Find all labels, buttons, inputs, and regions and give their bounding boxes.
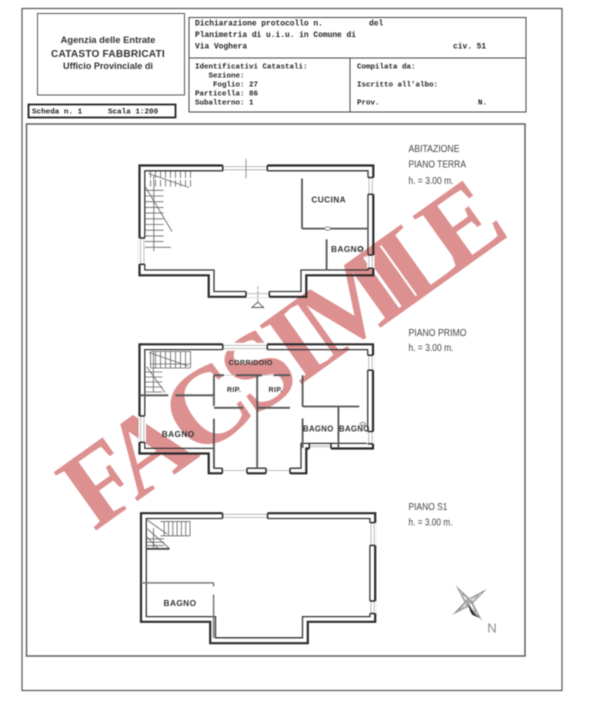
svg-text:PIANO S1: PIANO S1 (409, 502, 448, 513)
svg-text:Planimetria di u.i.u. in Comun: Planimetria di u.i.u. in Comune di (195, 31, 356, 40)
svg-text:Scheda n. 1: Scheda n. 1 (32, 109, 83, 117)
svg-text:Dichiarazione protocollo n.: Dichiarazione protocollo n. (195, 20, 323, 29)
svg-text:RIP.: RIP. (227, 385, 241, 394)
svg-text:BAGNO: BAGNO (331, 244, 364, 254)
svg-text:PIANO TERRA: PIANO TERRA (409, 160, 467, 171)
svg-text:N: N (487, 621, 496, 636)
svg-text:civ. 51: civ. 51 (453, 43, 486, 52)
svg-text:Subalterno: 1: Subalterno: 1 (195, 100, 254, 108)
svg-text:Foglio: 27: Foglio: 27 (195, 82, 258, 90)
svg-text:BAGNO: BAGNO (164, 598, 197, 608)
svg-text:h. = 3.00 m.: h. = 3.00 m. (409, 343, 454, 354)
svg-text:BAGNO: BAGNO (339, 425, 370, 434)
svg-text:ABITAZIONE: ABITAZIONE (409, 144, 460, 155)
svg-text:h. = 3.00 m.: h. = 3.00 m. (409, 176, 454, 187)
svg-text:Prov.: Prov. (357, 100, 380, 108)
svg-text:Ufficio Provinciale di: Ufficio Provinciale di (63, 61, 153, 71)
svg-text:Particella: 86: Particella: 86 (195, 91, 259, 99)
svg-text:PIANO PRIMO: PIANO PRIMO (409, 328, 467, 339)
svg-text:BAGNO: BAGNO (303, 425, 334, 434)
svg-text:CATASTO FABBRICATI: CATASTO FABBRICATI (51, 49, 165, 60)
svg-text:Compilata da:: Compilata da: (357, 64, 416, 72)
svg-text:Identificativi Catastali:: Identificativi Catastali: (195, 64, 308, 72)
svg-text:RIP.: RIP. (268, 385, 282, 394)
svg-text:h. = 3.00 m.: h. = 3.00 m. (409, 518, 453, 529)
svg-text:Agenzia delle Entrate: Agenzia delle Entrate (61, 34, 156, 45)
svg-text:Scala 1:200: Scala 1:200 (108, 109, 159, 117)
svg-text:Via Voghera: Via Voghera (195, 43, 247, 52)
svg-text:CUCINA: CUCINA (311, 195, 346, 205)
svg-text:Sezione:: Sezione: (195, 73, 245, 81)
svg-text:del: del (369, 20, 383, 29)
svg-text:CORRIDOIO: CORRIDOIO (228, 358, 272, 367)
svg-text:BAGNO: BAGNO (162, 429, 195, 439)
svg-text:Iscritto all'albo:: Iscritto all'albo: (357, 82, 438, 90)
svg-text:N.: N. (478, 100, 487, 108)
